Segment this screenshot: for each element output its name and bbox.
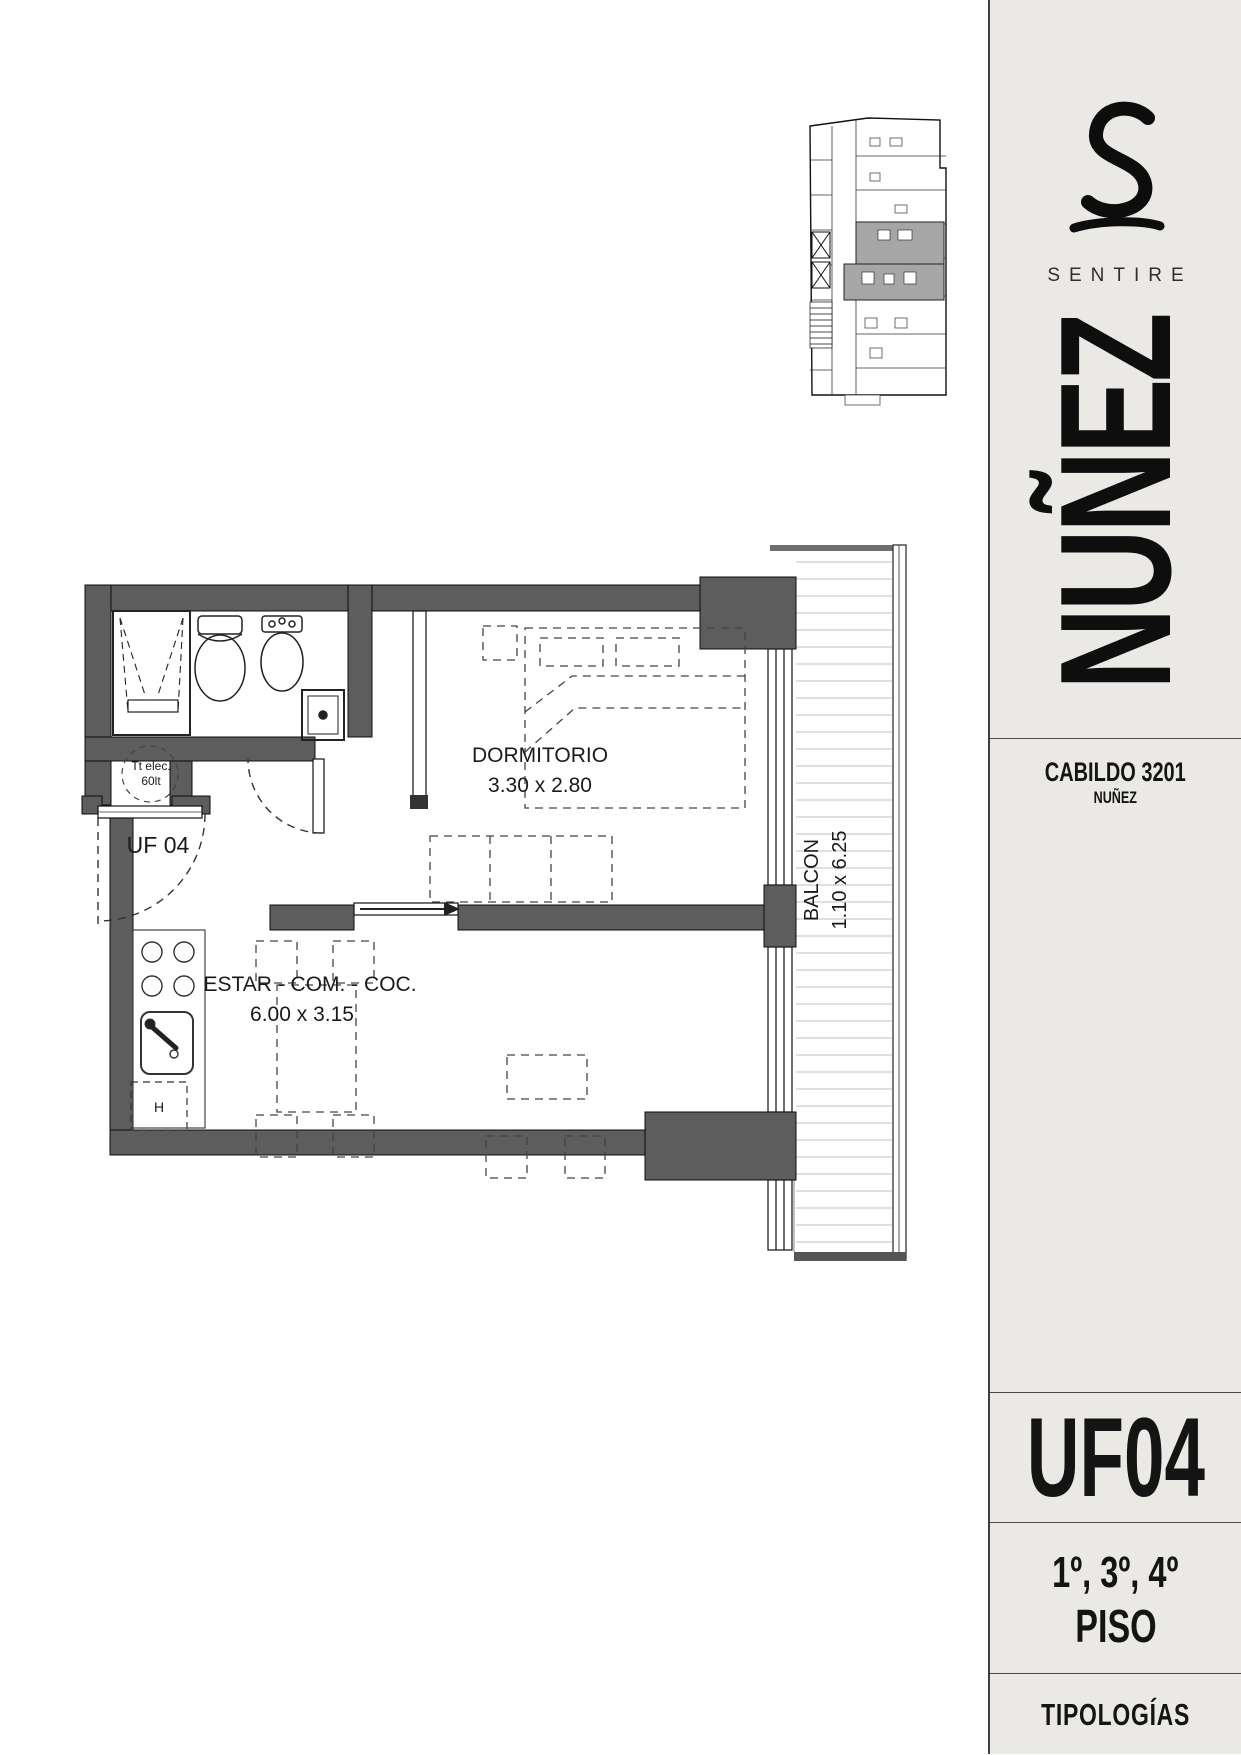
info-sidebar: SENTIRE NUÑEZ CABILDO 3201 NUÑEZ UF04 1º… (988, 0, 1241, 1754)
balcony-top-edge (770, 545, 906, 551)
coffee-table (507, 1055, 587, 1099)
address-line1: CABILDO 3201 (1045, 758, 1186, 788)
footer-label: TIPOLOGÍAS (1041, 1697, 1190, 1733)
key-plan-stairs-icon (810, 302, 832, 348)
toilet-icon (195, 616, 245, 701)
floors-label: PISO (1075, 1600, 1156, 1653)
typology-sheet: { "sidebar": { "bg": "#eae9e6", "accent"… (0, 0, 1241, 1754)
pillow (540, 638, 603, 666)
bedroom-dimensions: 3.30 x 2.80 (488, 774, 592, 797)
kitchen-sink-icon (141, 1012, 193, 1074)
shower-icon (113, 611, 190, 735)
bedroom-label: DORMITORIO (472, 744, 608, 767)
blanket-fold (525, 676, 745, 712)
unit-code-section: UF04 (990, 1392, 1241, 1523)
key-plan-highlight-unit (844, 222, 944, 300)
project-name-vertical: NUÑEZ (1037, 316, 1195, 690)
lower-window (768, 1180, 792, 1250)
kitchen-counter (133, 930, 205, 1128)
nightstand (483, 626, 517, 660)
range-hood: H (131, 1082, 187, 1130)
room-labels: DORMITORIO 3.30 x 2.80 ESTAR - COM. - CO… (127, 744, 608, 1026)
bedroom-sliding-door (354, 902, 460, 916)
living-label: ESTAR - COM. - COC. (203, 973, 416, 996)
pillow (616, 638, 679, 666)
balcony-label: BALCON (801, 839, 823, 921)
bathroom-fixtures (113, 611, 344, 740)
floors-value: 1º, 3º, 4º (1052, 1545, 1178, 1600)
water-heater-label-2: 60lt (141, 774, 161, 788)
floors-section: 1º, 3º, 4º PISO (990, 1522, 1241, 1674)
kitchen: H (131, 930, 205, 1130)
stove-icon (142, 942, 194, 996)
living-window (768, 947, 792, 1112)
hood-label: H (154, 1099, 164, 1115)
sentire-script-s-icon (990, 96, 1241, 246)
bathroom-door (248, 759, 324, 833)
living-dimensions: 6.00 x 3.15 (250, 1003, 354, 1026)
washbasin-icon (302, 690, 344, 740)
wardrobe (430, 836, 612, 902)
brand-block: SENTIRE (990, 96, 1241, 287)
balcony-dimensions: 1.10 x 6.25 (829, 831, 851, 930)
footer-section: TIPOLOGÍAS (990, 1673, 1241, 1755)
brand-name: SENTIRE (990, 265, 1241, 287)
bedroom-window (768, 649, 792, 885)
bedroom-partition (410, 611, 428, 809)
address-line2: NUÑEZ (1094, 788, 1137, 808)
bidet-icon (261, 616, 303, 691)
balcony-bottom-edge (794, 1252, 906, 1261)
address-section: CABILDO 3201 NUÑEZ (990, 738, 1241, 828)
water-heater-label-1: Tt elec. (131, 759, 170, 773)
unit-label: UF 04 (127, 832, 190, 858)
unit-code: UF04 (1026, 1402, 1204, 1514)
floor-plan: BALCON 1.10 x 6.25 (0, 0, 988, 1754)
building-key-plan (810, 118, 946, 405)
